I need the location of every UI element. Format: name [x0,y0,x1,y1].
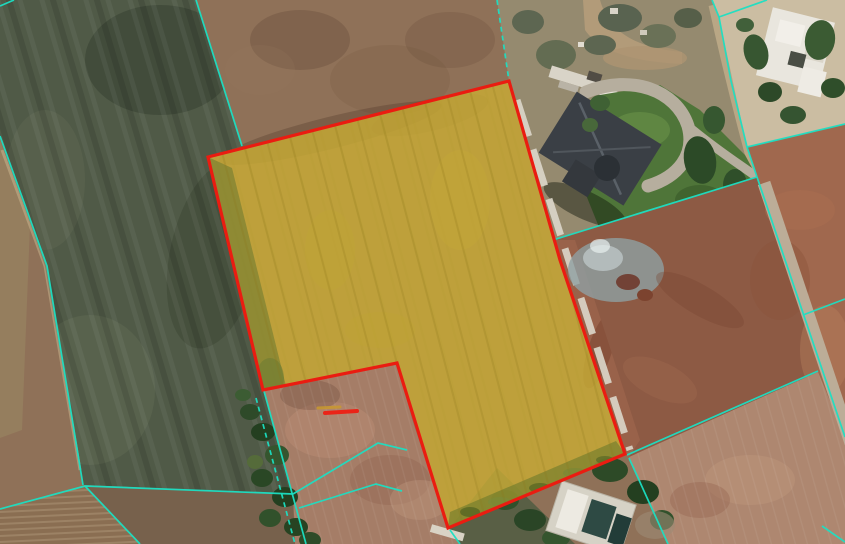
dash-marker-orange [318,407,340,408]
cadastral-line-east-branch-upper [747,124,845,147]
cadastral-line-house-parcel-east [712,0,757,177]
cadastral-line-south-fan-lower [299,484,402,508]
cadastral-line-south-fan-upper [293,443,407,494]
cadastral-line-north-field-boundary [196,0,242,146]
cadastral-line-north-to-parcel-corner [497,0,509,81]
cadastral-line-west-long-boundary [0,136,83,485]
cadastral-line-house-parcel-south [553,177,757,240]
cadastral-line-east-branch-mid [803,299,845,315]
dash-marker-red [325,411,357,413]
cadastral-line-south-from-parcel-corner [629,458,668,544]
cadastral-line-south-vertical-b [256,398,295,544]
satellite-map-canvas[interactable] [0,0,845,544]
cadastral-line-nw-corner-tick [0,0,14,6]
selected-parcel-fill[interactable] [208,81,625,528]
cadastral-line-house-parcel-ne-branch [719,0,767,17]
cadastral-line-south-vertical-a [264,391,306,544]
cadastral-line-east-road-boundary [757,177,845,437]
cadastral-line-south-stub [450,530,460,544]
cadastral-line-southeast-diagonal [627,371,818,455]
cadastral-line-southwest-diagonal [85,486,140,544]
annotation-markers-group [318,407,357,413]
cadastral-overlay-layer [0,0,845,544]
cadastral-line-southwest-horizontal [0,486,293,509]
cadastral-line-bottom-right-corner-line [822,526,845,542]
